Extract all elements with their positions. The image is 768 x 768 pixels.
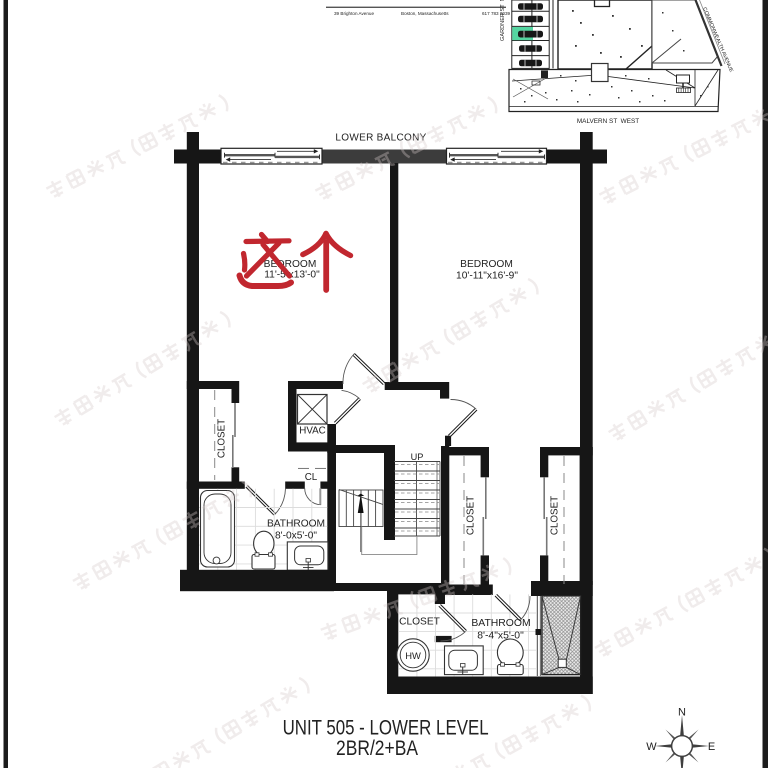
- svg-text:8'-0x5'-0": 8'-0x5'-0": [275, 531, 317, 542]
- svg-text:Boston, Massachusetts: Boston, Massachusetts: [401, 11, 449, 16]
- svg-text:HW: HW: [405, 650, 421, 661]
- svg-text:CL: CL: [305, 472, 318, 483]
- svg-text:N: N: [678, 707, 686, 719]
- svg-text:UP: UP: [411, 452, 424, 462]
- svg-text:11'-5 x13'-0": 11'-5 x13'-0": [264, 270, 320, 281]
- svg-text:CLOSET: CLOSET: [466, 496, 477, 535]
- svg-text:CLOSET: CLOSET: [550, 496, 561, 535]
- svg-text:BATHROOM: BATHROOM: [267, 519, 325, 530]
- svg-text:W: W: [646, 741, 657, 753]
- svg-text:617 783 0039: 617 783 0039: [482, 11, 511, 16]
- svg-text:BATHROOM: BATHROOM: [471, 618, 530, 629]
- svg-text:BEDROOM: BEDROOM: [264, 259, 317, 270]
- svg-text:BEDROOM: BEDROOM: [460, 259, 513, 270]
- svg-text:MALVERN ST WEST: MALVERN ST WEST: [577, 118, 639, 125]
- svg-text:HVAC: HVAC: [299, 426, 326, 437]
- svg-text:2BR/2+BA: 2BR/2+BA: [336, 736, 419, 760]
- svg-text:39 Brighton Avenue: 39 Brighton Avenue: [334, 11, 374, 16]
- svg-text:GARDNER ST NO: GARDNER ST NO: [500, 0, 506, 41]
- svg-text:10'-11"x16'-9": 10'-11"x16'-9": [456, 271, 518, 282]
- svg-text:8'-4"x5'-0": 8'-4"x5'-0": [477, 631, 524, 642]
- svg-text:CLOSET: CLOSET: [399, 617, 440, 628]
- svg-text:CLOSET: CLOSET: [217, 419, 228, 458]
- svg-text:E: E: [708, 741, 715, 753]
